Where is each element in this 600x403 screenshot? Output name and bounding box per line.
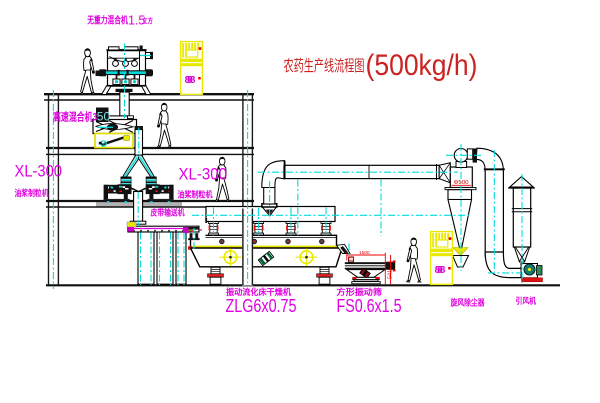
svg-text:油桨制粒机: 油桨制粒机 bbox=[178, 190, 213, 200]
svg-text:引风机: 引风机 bbox=[516, 296, 537, 306]
svg-text:油桨制粒机: 油桨制粒机 bbox=[15, 188, 49, 198]
svg-text:1500: 1500 bbox=[359, 250, 370, 256]
svg-text:无重力混合机: 无重力混合机 bbox=[87, 15, 129, 27]
svg-text:50: 50 bbox=[97, 110, 111, 124]
svg-text:FS0.6x1.5: FS0.6x1.5 bbox=[337, 295, 402, 316]
svg-text:皮带输送机: 皮带输送机 bbox=[150, 208, 185, 218]
svg-text:旋风除尘器: 旋风除尘器 bbox=[450, 297, 485, 308]
svg-text:Φ500: Φ500 bbox=[454, 180, 469, 186]
svg-text:立方: 立方 bbox=[142, 16, 153, 25]
svg-text:ZLG6x0.75: ZLG6x0.75 bbox=[226, 295, 297, 316]
svg-text:541: 541 bbox=[388, 270, 394, 279]
svg-text:(500kg/h): (500kg/h) bbox=[366, 49, 478, 82]
svg-text:高速混合机3: 高速混合机3 bbox=[53, 110, 97, 124]
svg-text:XL-300: XL-300 bbox=[15, 162, 63, 180]
svg-text:农药生产线流程图: 农药生产线流程图 bbox=[284, 57, 365, 75]
svg-text:XL-300: XL-300 bbox=[179, 165, 228, 184]
